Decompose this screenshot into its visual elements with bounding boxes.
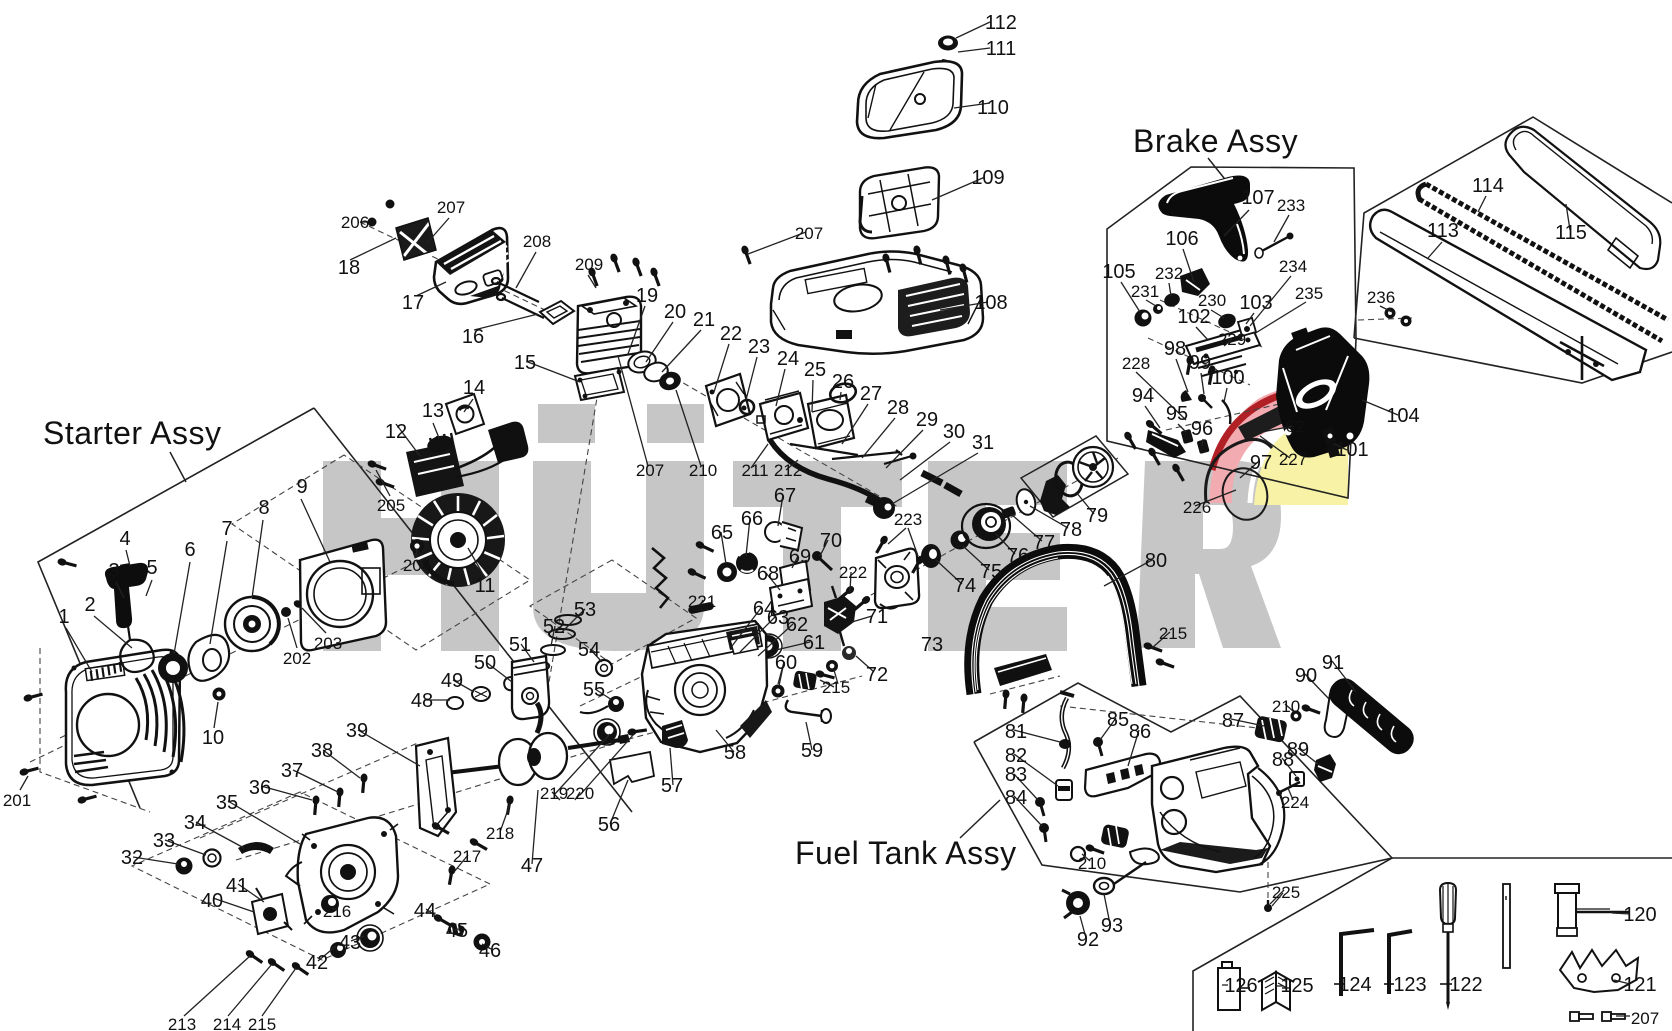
svg-text:78: 78 (1060, 519, 1082, 541)
svg-text:113: 113 (1427, 220, 1459, 242)
svg-text:223: 223 (894, 510, 922, 529)
svg-text:110: 110 (977, 97, 1009, 119)
svg-text:104: 104 (1386, 405, 1419, 427)
svg-text:79: 79 (1086, 505, 1108, 527)
svg-text:62: 62 (786, 614, 808, 636)
svg-text:59: 59 (801, 740, 823, 762)
svg-text:91: 91 (1322, 652, 1344, 674)
svg-text:45: 45 (446, 920, 468, 942)
svg-text:25: 25 (804, 359, 826, 381)
svg-text:125: 125 (1280, 975, 1313, 997)
svg-text:232: 232 (1155, 264, 1183, 283)
svg-text:105: 105 (1102, 261, 1135, 283)
svg-text:75: 75 (980, 561, 1002, 583)
svg-text:99: 99 (1189, 352, 1211, 374)
svg-text:83: 83 (1005, 764, 1027, 786)
svg-text:26: 26 (832, 371, 854, 393)
svg-text:13: 13 (422, 400, 444, 422)
svg-text:37: 37 (281, 760, 303, 782)
svg-text:81: 81 (1005, 721, 1027, 743)
svg-text:207: 207 (795, 224, 823, 243)
svg-text:109: 109 (971, 167, 1004, 189)
svg-text:115: 115 (1555, 222, 1587, 244)
svg-text:207: 207 (1631, 1009, 1659, 1028)
svg-text:215: 215 (822, 678, 850, 697)
svg-text:114: 114 (1472, 175, 1504, 197)
svg-text:86: 86 (1129, 721, 1151, 743)
svg-text:205: 205 (377, 496, 405, 515)
svg-text:107: 107 (1241, 187, 1274, 209)
svg-text:94: 94 (1132, 385, 1154, 407)
svg-text:7: 7 (221, 518, 232, 540)
svg-text:35: 35 (216, 792, 238, 814)
svg-text:235: 235 (1295, 284, 1323, 303)
svg-text:230: 230 (1198, 291, 1226, 310)
svg-text:68: 68 (757, 563, 779, 585)
svg-text:30: 30 (943, 421, 965, 443)
svg-text:31: 31 (972, 432, 994, 454)
svg-text:21: 21 (693, 309, 715, 331)
svg-text:53: 53 (574, 599, 596, 621)
svg-text:80: 80 (1145, 550, 1167, 572)
svg-text:77: 77 (1033, 532, 1055, 554)
svg-text:65: 65 (711, 522, 733, 544)
svg-text:19: 19 (636, 285, 658, 307)
svg-text:215: 215 (248, 1015, 276, 1031)
svg-text:219: 219 (540, 784, 568, 803)
svg-text:229: 229 (1218, 330, 1246, 349)
svg-text:27: 27 (860, 383, 882, 405)
svg-text:233: 233 (1277, 196, 1305, 215)
svg-text:9: 9 (296, 476, 307, 498)
svg-text:206: 206 (341, 213, 369, 232)
svg-text:14: 14 (463, 377, 485, 399)
svg-text:42: 42 (306, 952, 328, 974)
svg-text:11: 11 (475, 575, 496, 597)
svg-text:2: 2 (84, 594, 95, 616)
svg-text:8: 8 (258, 497, 269, 519)
svg-text:72: 72 (866, 664, 888, 686)
svg-text:92: 92 (1077, 929, 1099, 951)
svg-text:41: 41 (226, 875, 248, 897)
svg-text:73: 73 (921, 634, 943, 656)
svg-text:33: 33 (153, 830, 175, 852)
svg-text:100: 100 (1211, 367, 1244, 389)
svg-text:1: 1 (58, 606, 69, 628)
svg-text:24: 24 (777, 348, 799, 370)
svg-text:66: 66 (741, 508, 763, 530)
svg-text:74: 74 (954, 575, 976, 597)
svg-text:106: 106 (1165, 228, 1198, 250)
svg-text:46: 46 (479, 940, 501, 962)
svg-text:4: 4 (119, 528, 130, 550)
svg-text:227: 227 (1279, 450, 1307, 469)
svg-text:111: 111 (986, 38, 1016, 60)
svg-text:10: 10 (202, 727, 224, 749)
svg-text:18: 18 (338, 257, 360, 279)
svg-text:210: 210 (689, 461, 717, 480)
svg-text:103: 103 (1239, 292, 1272, 314)
svg-text:96: 96 (1191, 418, 1213, 440)
svg-text:71: 71 (866, 606, 888, 628)
svg-text:54: 54 (578, 639, 600, 661)
svg-text:213: 213 (168, 1015, 196, 1031)
svg-text:122: 122 (1449, 974, 1482, 996)
svg-text:212: 212 (774, 461, 802, 480)
svg-text:228: 228 (1122, 354, 1150, 373)
svg-text:34: 34 (184, 812, 206, 834)
svg-text:70: 70 (820, 530, 842, 552)
svg-text:221: 221 (688, 592, 716, 611)
svg-text:87: 87 (1222, 710, 1244, 732)
svg-text:220: 220 (566, 784, 594, 803)
svg-text:90: 90 (1295, 665, 1317, 687)
svg-text:209: 209 (575, 255, 603, 274)
svg-text:97: 97 (1250, 452, 1272, 474)
svg-text:208: 208 (523, 232, 551, 251)
svg-text:210: 210 (1078, 854, 1106, 873)
svg-text:204: 204 (403, 556, 431, 575)
svg-text:16: 16 (462, 326, 484, 348)
svg-text:207: 207 (636, 461, 664, 480)
svg-text:32: 32 (121, 847, 143, 869)
svg-text:3: 3 (108, 560, 119, 582)
svg-text:64: 64 (753, 598, 775, 620)
svg-text:203: 203 (314, 634, 342, 653)
svg-text:6: 6 (184, 539, 195, 561)
svg-text:108: 108 (974, 292, 1007, 314)
svg-text:49: 49 (441, 670, 463, 692)
svg-text:52: 52 (543, 616, 565, 638)
svg-text:207: 207 (437, 198, 465, 217)
svg-text:112: 112 (985, 12, 1017, 34)
svg-text:69: 69 (789, 546, 811, 568)
svg-text:123: 123 (1393, 974, 1426, 996)
svg-text:222: 222 (839, 563, 867, 582)
svg-text:56: 56 (598, 814, 620, 836)
svg-text:124: 124 (1338, 974, 1371, 996)
svg-text:210: 210 (1272, 697, 1300, 716)
svg-text:214: 214 (213, 1015, 241, 1031)
svg-text:50: 50 (474, 652, 496, 674)
svg-text:98: 98 (1164, 338, 1186, 360)
svg-text:60: 60 (775, 652, 797, 674)
svg-text:215: 215 (1159, 624, 1187, 643)
svg-text:5: 5 (146, 557, 157, 579)
svg-text:29: 29 (916, 409, 938, 431)
svg-text:85: 85 (1107, 709, 1129, 731)
svg-text:218: 218 (486, 824, 514, 843)
svg-text:231: 231 (1131, 282, 1159, 301)
svg-text:84: 84 (1005, 787, 1027, 809)
svg-text:95: 95 (1166, 403, 1188, 425)
svg-text:58: 58 (724, 742, 746, 764)
svg-text:76: 76 (1007, 545, 1029, 567)
svg-text:23: 23 (748, 336, 770, 358)
svg-text:47: 47 (521, 855, 543, 877)
svg-text:234: 234 (1279, 257, 1307, 276)
svg-text:Fuel Tank Assy: Fuel Tank Assy (795, 835, 1017, 871)
svg-text:226: 226 (1183, 498, 1211, 517)
svg-text:217: 217 (453, 847, 481, 866)
svg-text:202: 202 (283, 649, 311, 668)
svg-text:48: 48 (411, 690, 433, 712)
svg-text:43: 43 (339, 932, 361, 954)
svg-text:121: 121 (1623, 974, 1656, 996)
svg-text:62: 62 (1286, 417, 1305, 436)
svg-text:40: 40 (201, 890, 223, 912)
svg-text:Starter Assy: Starter Assy (43, 415, 222, 451)
svg-text:15: 15 (514, 352, 536, 374)
svg-text:101: 101 (1335, 439, 1368, 461)
svg-text:55: 55 (583, 679, 605, 701)
svg-text:28: 28 (887, 397, 909, 419)
svg-text:38: 38 (311, 740, 333, 762)
svg-text:126: 126 (1224, 975, 1257, 997)
svg-text:225: 225 (1272, 883, 1300, 902)
svg-text:39: 39 (346, 720, 368, 742)
svg-text:224: 224 (1281, 793, 1309, 812)
svg-text:22: 22 (720, 323, 742, 345)
svg-text:67: 67 (774, 485, 796, 507)
svg-text:Brake Assy: Brake Assy (1133, 123, 1298, 159)
svg-text:36: 36 (249, 777, 271, 799)
svg-text:236: 236 (1367, 288, 1395, 307)
svg-text:51: 51 (509, 634, 531, 656)
svg-text:211: 211 (741, 461, 768, 480)
svg-text:216: 216 (323, 902, 351, 921)
svg-text:17: 17 (402, 292, 424, 314)
svg-text:120: 120 (1623, 904, 1656, 926)
svg-text:93: 93 (1101, 915, 1123, 937)
svg-text:12: 12 (385, 421, 407, 443)
svg-text:89: 89 (1287, 739, 1309, 761)
svg-text:57: 57 (661, 775, 683, 797)
svg-text:20: 20 (664, 301, 686, 323)
svg-text:201: 201 (3, 791, 31, 810)
svg-text:44: 44 (414, 900, 436, 922)
